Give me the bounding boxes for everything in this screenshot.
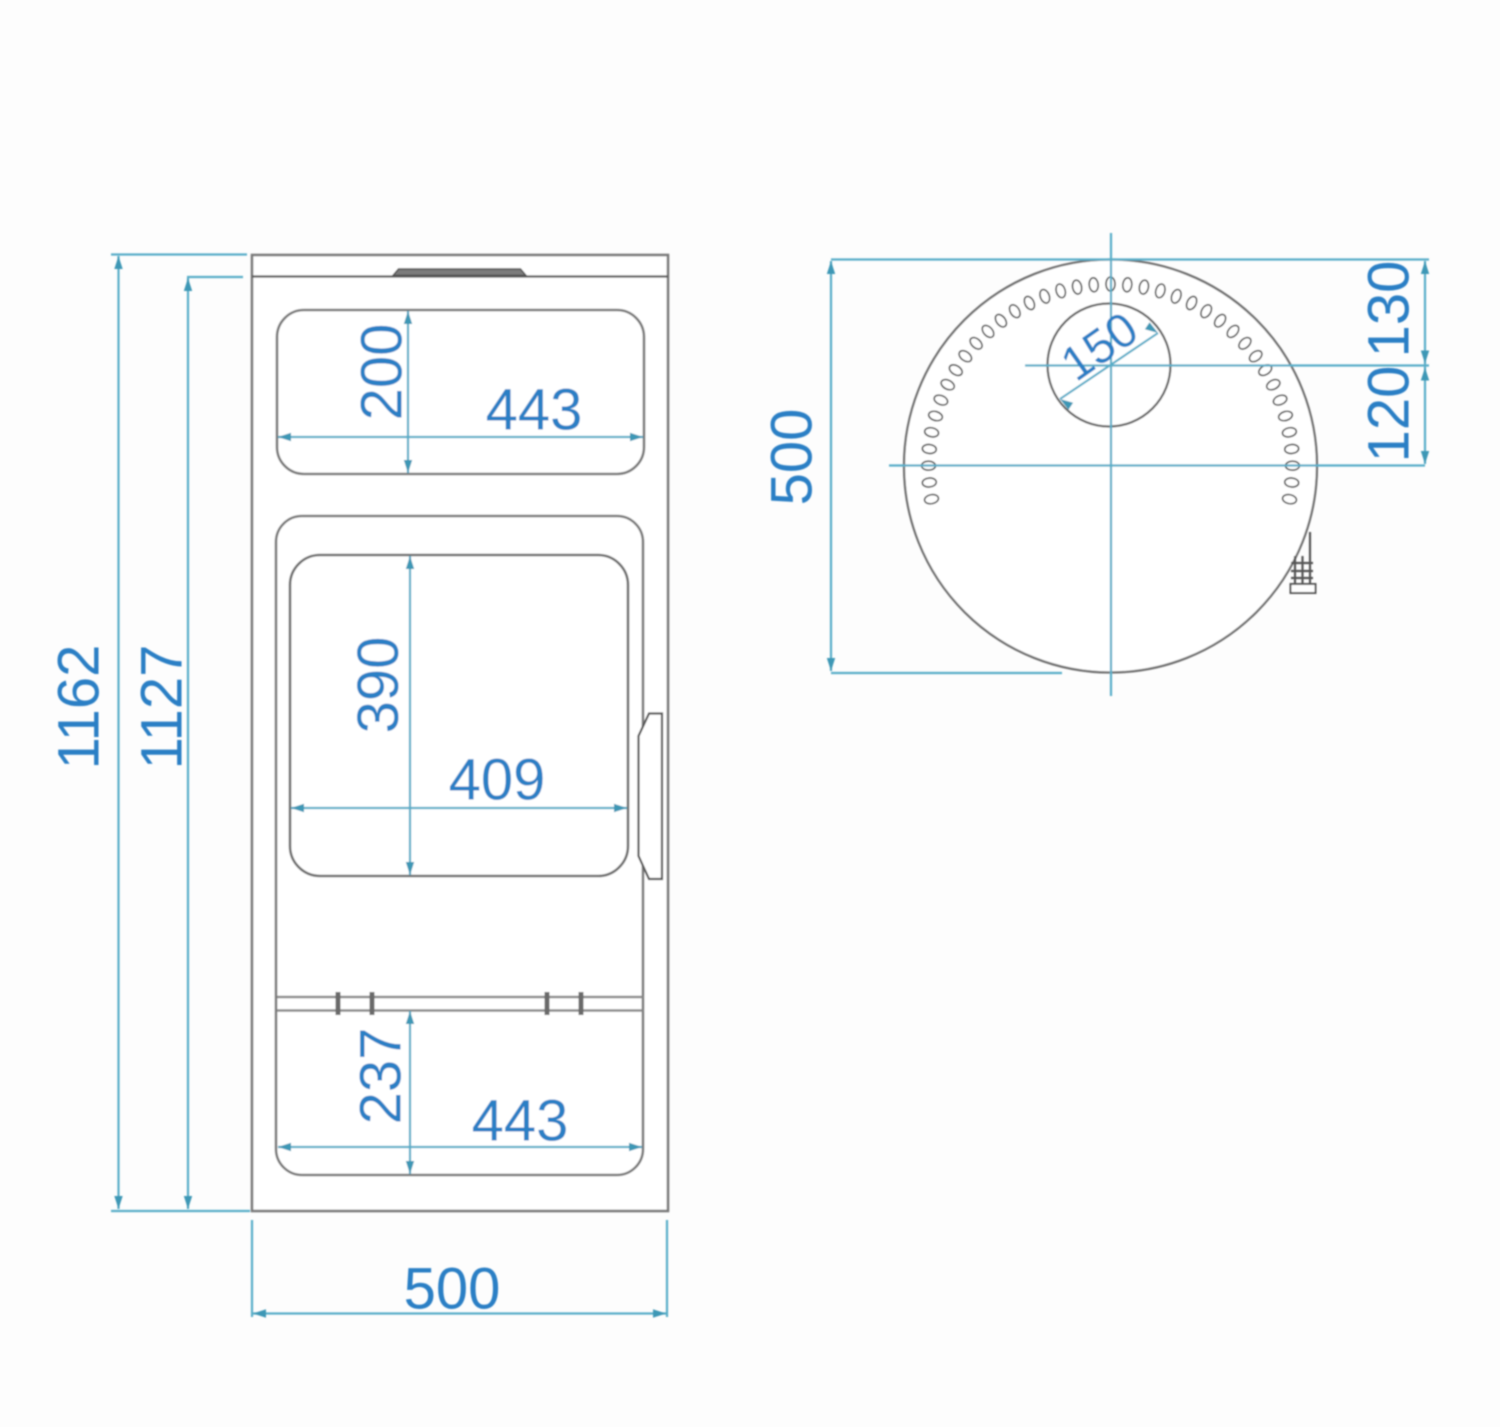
- svg-text:390: 390: [346, 637, 411, 734]
- svg-text:500: 500: [404, 1256, 501, 1321]
- svg-text:1127: 1127: [129, 645, 194, 770]
- svg-text:443: 443: [486, 377, 583, 442]
- svg-text:130: 130: [1356, 261, 1421, 358]
- svg-text:200: 200: [349, 324, 414, 421]
- svg-text:120: 120: [1356, 366, 1421, 463]
- svg-text:500: 500: [759, 409, 824, 506]
- svg-text:1162: 1162: [46, 645, 111, 770]
- svg-text:409: 409: [449, 747, 546, 812]
- svg-text:237: 237: [348, 1028, 413, 1125]
- svg-text:443: 443: [472, 1088, 569, 1153]
